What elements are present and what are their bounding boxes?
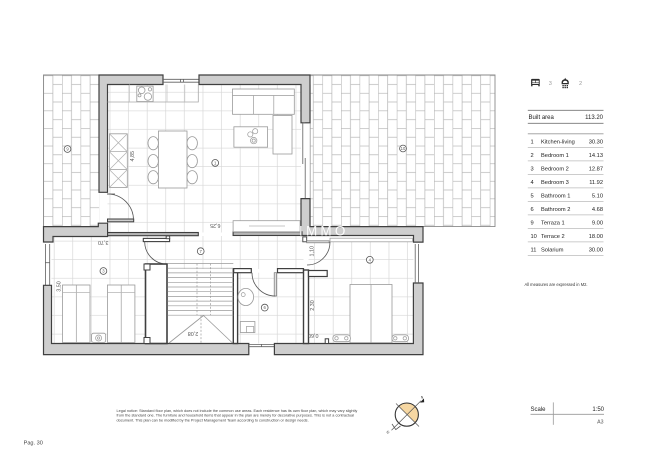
- svg-text:113.20: 113.20: [585, 115, 604, 121]
- svg-text:30.30: 30.30: [589, 140, 603, 146]
- svg-text:14.13: 14.13: [589, 153, 603, 159]
- svg-text:2: 2: [531, 153, 534, 159]
- svg-text:Pag. 30: Pag. 30: [24, 441, 43, 447]
- svg-text:4.68: 4.68: [592, 207, 603, 213]
- svg-text:Built area: Built area: [529, 115, 555, 121]
- svg-text:2,30: 2,30: [310, 300, 316, 311]
- svg-text:Bedroom 3: Bedroom 3: [541, 180, 569, 186]
- svg-text:3,70: 3,70: [98, 239, 109, 245]
- svg-text:10: 10: [531, 234, 537, 240]
- svg-text:Kitchen-living: Kitchen-living: [541, 140, 575, 146]
- svg-text:Bedroom 2: Bedroom 2: [541, 167, 569, 173]
- svg-text:3: 3: [531, 167, 534, 173]
- svg-text:Solarium: Solarium: [541, 248, 564, 254]
- svg-text:10: 10: [401, 146, 406, 151]
- svg-text:IMMO: IMMO: [299, 224, 349, 239]
- svg-text:2,08: 2,08: [188, 330, 199, 336]
- svg-text:Bathroom 2: Bathroom 2: [541, 207, 570, 213]
- svg-text:All measures are expressed in: All measures are expressed in M2.: [525, 282, 588, 287]
- svg-text:Terrace 2: Terrace 2: [541, 234, 565, 240]
- svg-text:6: 6: [531, 207, 534, 213]
- svg-text:1,10: 1,10: [310, 246, 316, 257]
- svg-text:4,85: 4,85: [130, 151, 136, 162]
- svg-text:11: 11: [531, 248, 537, 254]
- svg-text:Bedroom 1: Bedroom 1: [541, 153, 569, 159]
- svg-text:9: 9: [531, 221, 534, 227]
- svg-text:18.00: 18.00: [589, 234, 603, 240]
- svg-text:1:50: 1:50: [592, 407, 604, 413]
- svg-text:30.00: 30.00: [589, 248, 603, 254]
- svg-text:11.92: 11.92: [589, 180, 603, 186]
- svg-text:document. This plan can be mod: document. This plan can be modified by t…: [117, 418, 309, 422]
- svg-text:2: 2: [579, 81, 582, 87]
- svg-text:from the standard one. The fur: from the standard one. The furniture and…: [117, 414, 355, 418]
- svg-text:0,60: 0,60: [308, 332, 319, 338]
- svg-text:Legal notice: Standard floor p: Legal notice: Standard floor plan, which…: [117, 409, 358, 413]
- svg-text:6,25: 6,25: [210, 222, 221, 228]
- svg-text:3: 3: [549, 81, 552, 87]
- svg-text:5.10: 5.10: [592, 194, 603, 200]
- svg-text:1: 1: [531, 140, 534, 146]
- svg-text:3,50: 3,50: [56, 281, 62, 292]
- svg-text:Bathroom 1: Bathroom 1: [541, 194, 570, 200]
- svg-text:12.87: 12.87: [589, 167, 603, 173]
- svg-text:Terraza 1: Terraza 1: [541, 221, 565, 227]
- svg-text:4: 4: [531, 180, 534, 186]
- svg-text:Scale: Scale: [531, 407, 547, 413]
- svg-text:9.00: 9.00: [592, 221, 603, 227]
- svg-text:5: 5: [531, 194, 534, 200]
- svg-text:A3: A3: [597, 420, 603, 426]
